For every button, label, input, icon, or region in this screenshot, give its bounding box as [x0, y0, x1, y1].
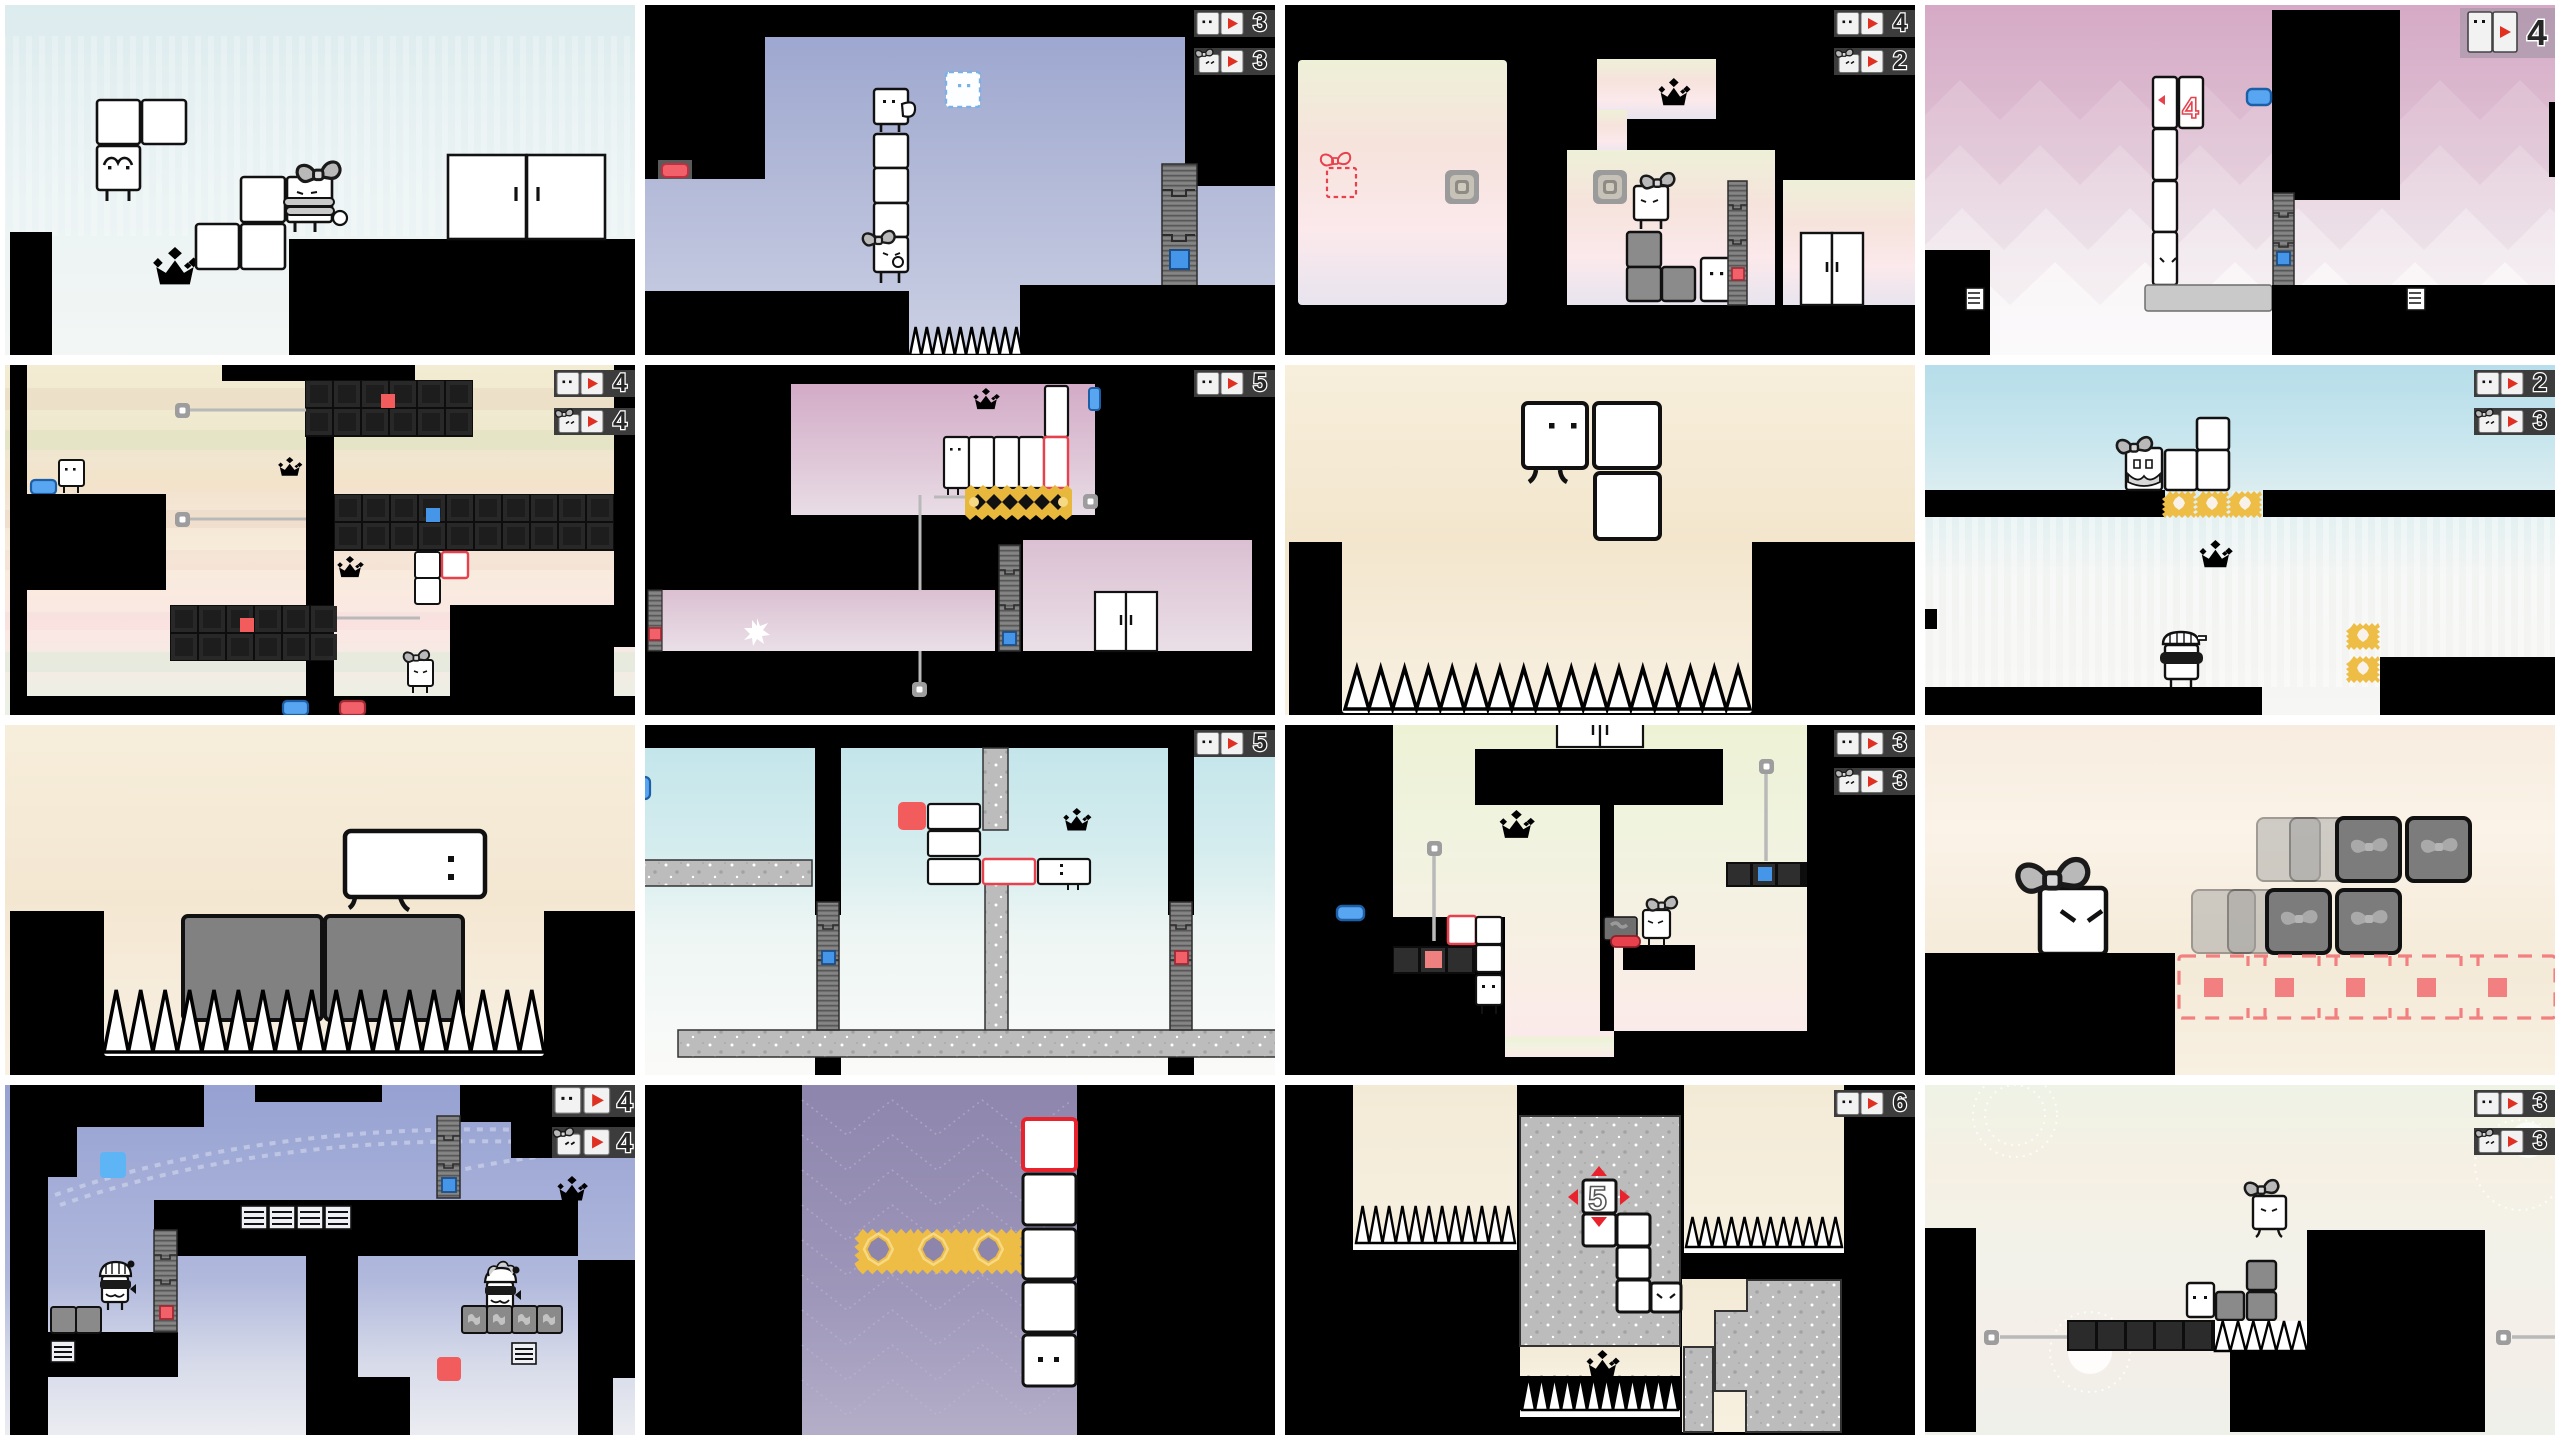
svg-text:3: 3: [2533, 1127, 2547, 1155]
svg-text:6: 6: [1893, 1089, 1907, 1117]
svg-text:3: 3: [2533, 1089, 2547, 1117]
svg-text:3: 3: [2533, 407, 2547, 435]
svg-text:4: 4: [1893, 9, 1907, 37]
svg-text:2: 2: [2533, 369, 2547, 397]
svg-text:5: 5: [1253, 729, 1267, 757]
svg-text:4: 4: [617, 1086, 633, 1117]
svg-text:4: 4: [2182, 92, 2199, 125]
svg-text:3: 3: [1893, 767, 1907, 795]
svg-text:4: 4: [2527, 12, 2547, 53]
svg-text:5: 5: [1253, 369, 1267, 397]
svg-text:3: 3: [1253, 47, 1267, 75]
svg-text:4: 4: [613, 369, 627, 397]
svg-text:3: 3: [1253, 9, 1267, 37]
svg-text:5: 5: [1588, 1180, 1607, 1218]
svg-text:4: 4: [613, 407, 627, 435]
svg-text:3: 3: [1893, 729, 1907, 757]
svg-text:4: 4: [617, 1127, 633, 1158]
svg-text:2: 2: [1893, 47, 1907, 75]
